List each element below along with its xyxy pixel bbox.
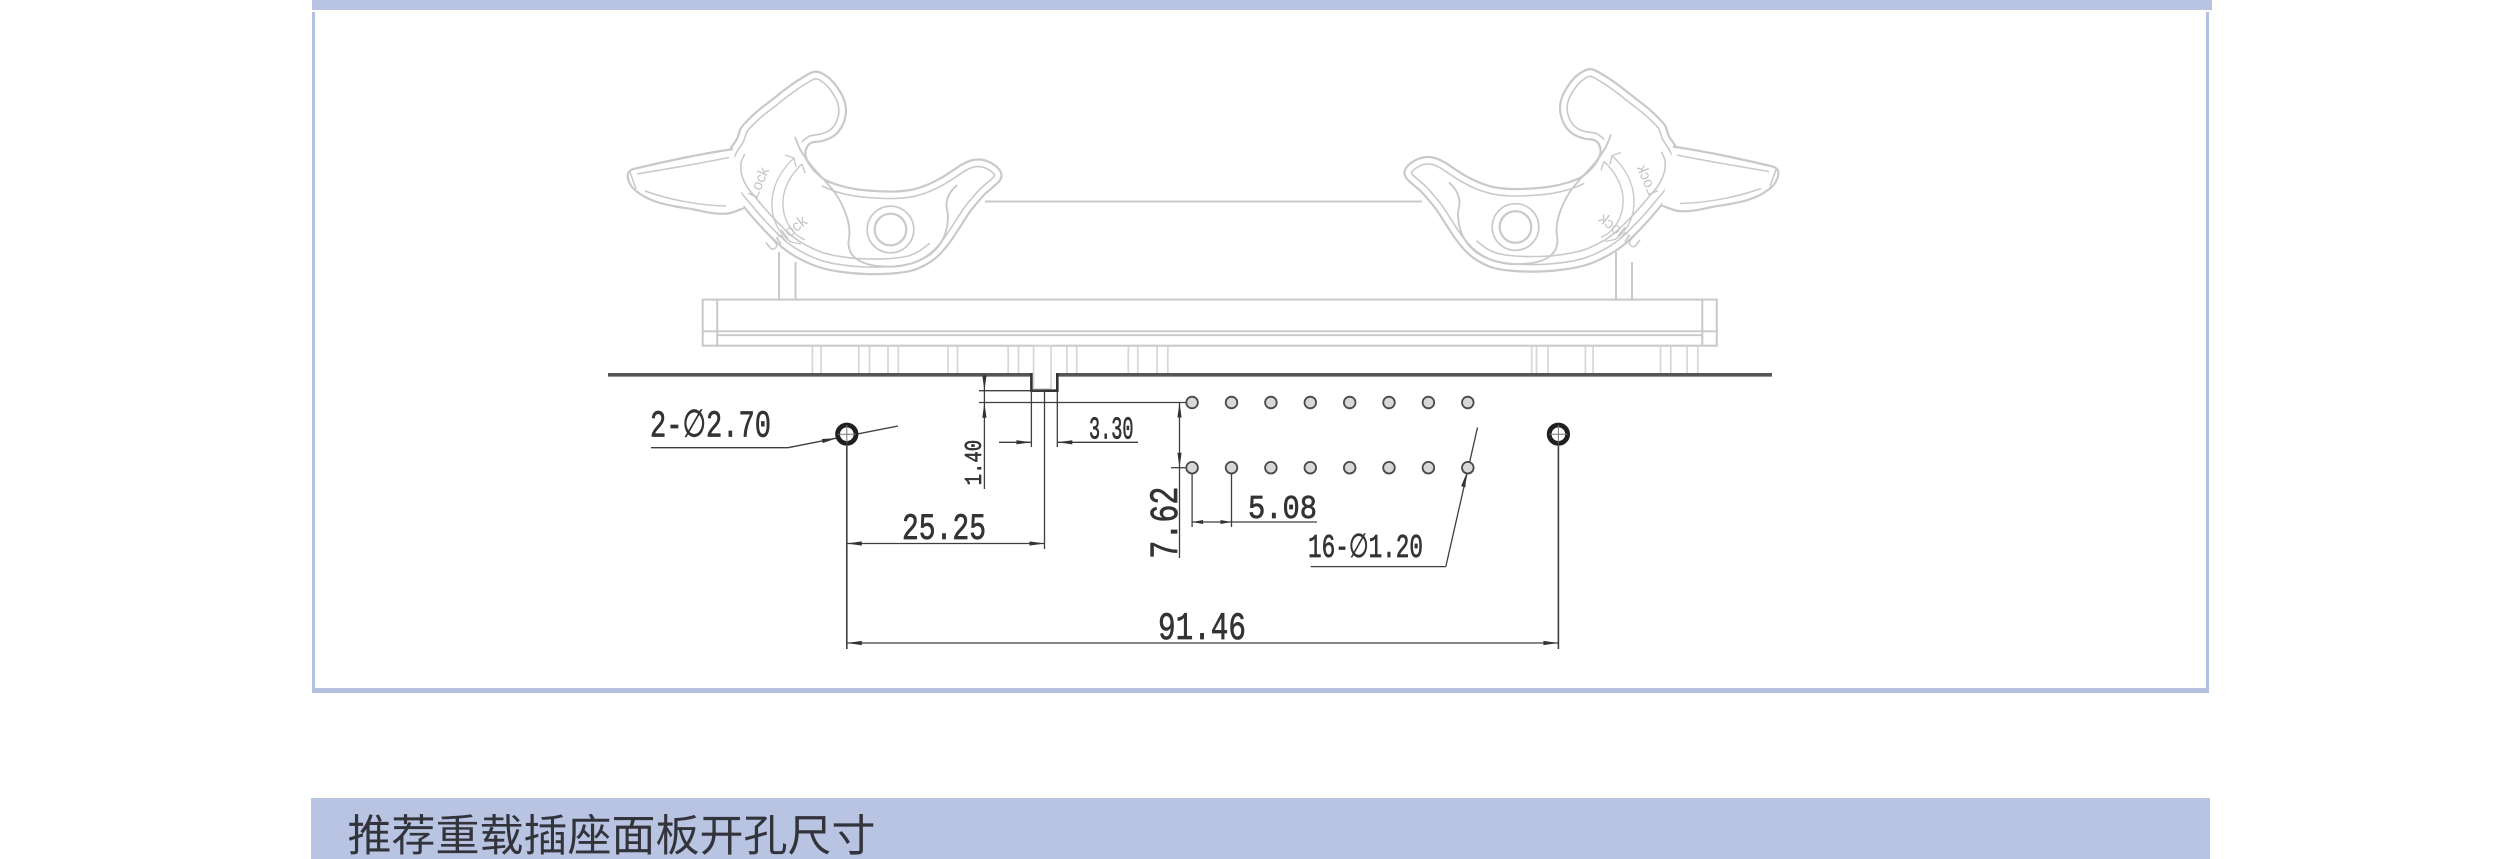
- svg-text:7.62: 7.62: [1145, 487, 1190, 559]
- svg-text:2-∅2.70: 2-∅2.70: [650, 406, 771, 449]
- svg-text:3.30: 3.30: [1089, 414, 1134, 449]
- svg-text:91.46: 91.46: [1158, 607, 1246, 651]
- svg-text:1.40: 1.40: [962, 440, 989, 486]
- svg-text:25.25: 25.25: [902, 509, 986, 551]
- svg-text:16-∅1.20: 16-∅1.20: [1308, 530, 1423, 567]
- svg-text:5.08: 5.08: [1248, 491, 1317, 528]
